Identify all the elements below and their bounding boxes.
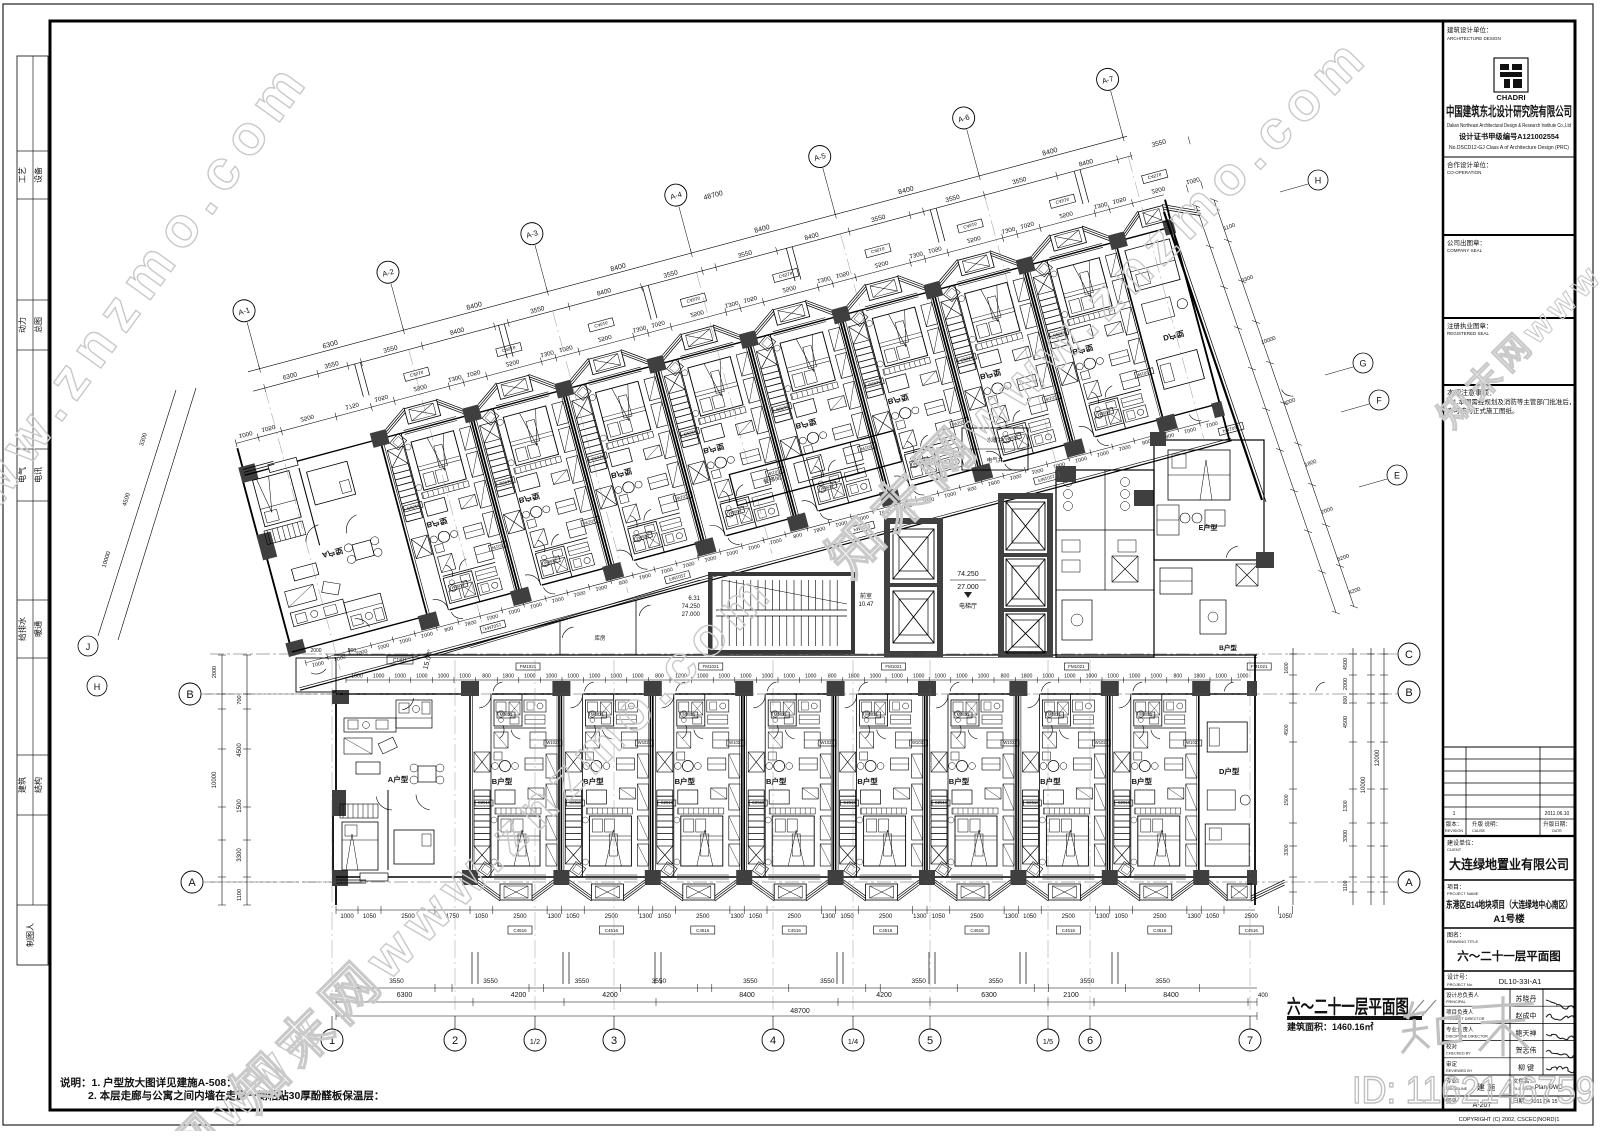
svg-text:4200: 4200 — [876, 992, 892, 999]
svg-text:5: 5 — [927, 1035, 933, 1047]
svg-text:版本：: 版本： — [1446, 820, 1463, 828]
svg-text:REVISION: REVISION — [1445, 829, 1463, 833]
svg-text:PROJECT No.: PROJECT No. — [1447, 982, 1473, 987]
svg-text:3300: 3300 — [237, 848, 243, 862]
svg-text:E: E — [1394, 471, 1400, 481]
svg-text:制图人: 制图人 — [25, 923, 35, 947]
svg-text:1100: 1100 — [237, 889, 243, 901]
svg-text:设计证书甲级编号A121002554: 设计证书甲级编号A121002554 — [1459, 131, 1560, 141]
svg-text:1500: 1500 — [237, 799, 243, 813]
svg-text:中国建筑东北设计研究院有限公司: 中国建筑东北设计研究院有限公司 — [1446, 104, 1572, 119]
svg-text:CHADRI: CHADRI — [1496, 93, 1525, 102]
svg-text:12000: 12000 — [1375, 749, 1381, 766]
svg-text:东港区B14地块项目（大连绿地中心南区）: 东港区B14地块项目（大连绿地中心南区） — [1446, 899, 1572, 911]
svg-text:设计总负责人: 设计总负责人 — [1446, 991, 1480, 999]
svg-text:1/4: 1/4 — [848, 1037, 858, 1046]
svg-text:升版日期：: 升版日期： — [1543, 820, 1571, 828]
svg-text:3550: 3550 — [988, 978, 1003, 985]
svg-text:1300: 1300 — [1343, 800, 1349, 811]
svg-text:6: 6 — [1087, 1035, 1093, 1047]
svg-text:B户型: B户型 — [1219, 643, 1237, 652]
svg-text:48700: 48700 — [790, 1008, 810, 1015]
svg-text:COMPANY SEAL: COMPANY SEAL — [1447, 248, 1483, 253]
svg-text:图名：: 图名： — [1447, 931, 1465, 939]
svg-text:A: A — [1405, 877, 1413, 889]
svg-text:1600: 1600 — [1284, 662, 1290, 673]
svg-text:No.DSCD12-GJ Class A of Archit: No.DSCD12-GJ Class A of Architecture Des… — [1449, 145, 1569, 151]
svg-text:1/2: 1/2 — [530, 1037, 540, 1046]
svg-text:3550: 3550 — [820, 978, 835, 985]
svg-text:4500: 4500 — [1284, 724, 1290, 735]
svg-text:REGISTERED SEAL: REGISTERED SEAL — [1447, 331, 1490, 336]
svg-text:Dalian Northeast Architectural: Dalian Northeast Architectural Design & … — [1447, 123, 1571, 129]
svg-text:10000: 10000 — [1361, 776, 1367, 793]
svg-text:E户型: E户型 — [1199, 523, 1218, 532]
svg-text:CLIENT: CLIENT — [1447, 847, 1462, 852]
svg-text:2: 2 — [452, 1035, 458, 1047]
svg-text:8400: 8400 — [1163, 992, 1179, 999]
svg-text:建筑面积：1460.16㎡: 建筑面积：1460.16㎡ — [1287, 1021, 1374, 1032]
svg-text:B: B — [186, 689, 193, 701]
svg-text:H: H — [94, 682, 101, 692]
svg-text:项目：: 项目： — [1447, 884, 1465, 891]
svg-text:10.47: 10.47 — [858, 602, 874, 608]
svg-text:总图: 总图 — [33, 317, 43, 333]
svg-text:2000: 2000 — [1343, 678, 1349, 690]
svg-text:六～二十一层平面图: 六～二十一层平面图 — [1457, 949, 1561, 963]
svg-text:H: H — [1315, 176, 1322, 186]
svg-text:4200: 4200 — [602, 992, 618, 999]
svg-text:六～二十一层平面图: 六～二十一层平面图 — [1287, 995, 1409, 1018]
svg-text:400: 400 — [1258, 993, 1269, 999]
svg-text:A1号楼: A1号楼 — [1493, 913, 1525, 925]
svg-text:4500: 4500 — [1343, 716, 1349, 728]
svg-text:8400: 8400 — [739, 992, 755, 999]
svg-text:10000: 10000 — [212, 771, 218, 788]
svg-text:ARCHITECTURE DESIGN: ARCHITECTURE DESIGN — [1447, 36, 1501, 41]
svg-text:CO-OPERATION: CO-OPERATION — [1447, 170, 1481, 175]
svg-text:公司出图章：: 公司出图章： — [1447, 238, 1486, 247]
svg-text:3550: 3550 — [575, 978, 590, 985]
svg-text:4500: 4500 — [1343, 658, 1349, 670]
svg-text:库房: 库房 — [594, 634, 606, 642]
svg-text:3300: 3300 — [1343, 830, 1349, 842]
svg-text:1: 1 — [1453, 811, 1456, 817]
svg-text:设备: 设备 — [33, 167, 43, 183]
svg-text:升版 说明：: 升版 说明： — [1472, 820, 1501, 828]
svg-text:3550: 3550 — [1080, 978, 1095, 985]
svg-text:暖通: 暖通 — [33, 621, 43, 637]
svg-text:6300: 6300 — [981, 992, 997, 999]
svg-text:6.31: 6.31 — [688, 596, 700, 602]
svg-text:前室: 前室 — [860, 592, 872, 600]
svg-text:2000: 2000 — [310, 648, 321, 654]
svg-text:800: 800 — [1343, 696, 1349, 705]
svg-text:74.250: 74.250 — [957, 571, 979, 578]
svg-text:建筑设计单位：: 建筑设计单位： — [1447, 25, 1493, 34]
svg-text:DATE: DATE — [1552, 829, 1562, 833]
svg-text:700: 700 — [237, 695, 243, 704]
svg-text:7: 7 — [1247, 1035, 1253, 1047]
svg-text:4200: 4200 — [511, 992, 527, 999]
svg-text:27.000: 27.000 — [957, 584, 979, 591]
svg-text:ID: 1162146759: ID: 1162146759 — [1352, 1070, 1595, 1112]
svg-text:3550: 3550 — [652, 978, 667, 985]
svg-text:工艺: 工艺 — [18, 167, 27, 183]
svg-text:800: 800 — [348, 648, 357, 654]
svg-text:1500: 1500 — [1284, 794, 1290, 805]
svg-text:J: J — [86, 642, 91, 652]
svg-text:建设单位：: 建设单位： — [1447, 839, 1477, 847]
svg-text:说明：1. 户型放大图详见建施A-508：: 说明：1. 户型放大图详见建施A-508： — [60, 1076, 237, 1089]
svg-text:4: 4 — [770, 1035, 776, 1047]
svg-text:G: G — [1359, 359, 1366, 369]
svg-text:CAUSE: CAUSE — [1472, 829, 1486, 833]
svg-text:6300: 6300 — [397, 992, 413, 999]
svg-text:电梯厅: 电梯厅 — [959, 602, 977, 610]
svg-text:DL10-33I-A1: DL10-33I-A1 — [1499, 977, 1542, 986]
svg-text:DRAWING TITLE: DRAWING TITLE — [1447, 939, 1478, 944]
svg-text:动力: 动力 — [17, 317, 27, 333]
svg-text:3550: 3550 — [1155, 978, 1170, 985]
svg-text:给排水: 给排水 — [17, 617, 27, 641]
svg-text:PROJECT NAME: PROJECT NAME — [1447, 891, 1479, 896]
svg-text:F: F — [1376, 396, 1382, 406]
svg-text:3550: 3550 — [743, 978, 758, 985]
svg-text:合作设计单位：: 合作设计单位： — [1447, 160, 1493, 169]
svg-text:鲍天禅: 鲍天禅 — [1516, 1028, 1537, 1037]
svg-text:1/5: 1/5 — [1043, 1037, 1053, 1046]
svg-text:3: 3 — [611, 1035, 617, 1047]
svg-text:注册执业图章：: 注册执业图章： — [1447, 321, 1493, 330]
svg-text:2011.06.10: 2011.06.10 — [1545, 811, 1570, 817]
svg-text:CHECKED BY: CHECKED BY — [1446, 1052, 1471, 1056]
svg-text:3550: 3550 — [911, 978, 926, 985]
svg-text:3550: 3550 — [483, 978, 498, 985]
svg-text:审定: 审定 — [1446, 1060, 1458, 1068]
svg-text:PRINCIPAL: PRINCIPAL — [1446, 1000, 1466, 1004]
svg-text:A: A — [188, 877, 196, 889]
svg-text:2100: 2100 — [1063, 992, 1079, 999]
svg-text:B: B — [1405, 687, 1412, 699]
svg-text:设计号：: 设计号： — [1447, 973, 1471, 981]
svg-text:COPYRIGHT (C) 2002, CSCEC(NORD: COPYRIGHT (C) 2002, CSCEC(NORD)1 — [1459, 1117, 1560, 1123]
svg-text:建筑: 建筑 — [17, 777, 27, 793]
svg-text:1100: 1100 — [1343, 880, 1349, 891]
svg-text:DISCIPLINE DIRECTOR: DISCIPLINE DIRECTOR — [1446, 1034, 1488, 1038]
svg-text:大连绿地置业有限公司: 大连绿地置业有限公司 — [1449, 857, 1569, 872]
svg-text:C: C — [1405, 649, 1413, 661]
svg-text:C1811: C1811 — [393, 658, 408, 664]
svg-text:结构: 结构 — [33, 777, 43, 793]
svg-text:2000: 2000 — [212, 666, 218, 678]
svg-text:3300: 3300 — [1284, 844, 1290, 855]
svg-text:4500: 4500 — [237, 743, 243, 757]
